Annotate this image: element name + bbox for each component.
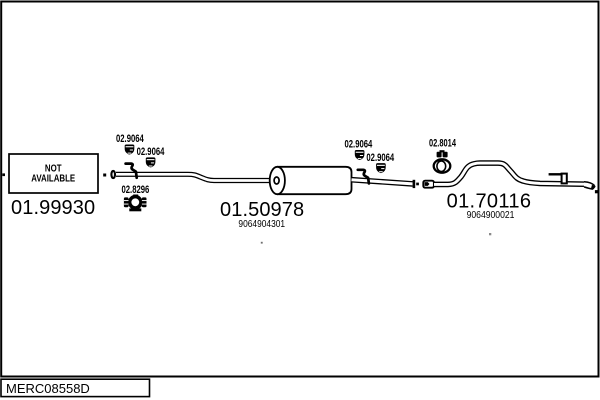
svg-text:02.8014: 02.8014 xyxy=(429,136,457,149)
svg-text:MERC08558D: MERC08558D xyxy=(6,381,90,396)
svg-text:9064904301: 9064904301 xyxy=(238,218,285,230)
svg-text:02.9064: 02.9064 xyxy=(116,133,144,146)
svg-text:02.9064: 02.9064 xyxy=(345,138,373,151)
svg-text:AVAILABLE: AVAILABLE xyxy=(31,173,75,184)
svg-text:01.99930: 01.99930 xyxy=(11,197,95,219)
svg-text:02.9064: 02.9064 xyxy=(137,146,165,159)
svg-text:9064900021: 9064900021 xyxy=(467,209,515,221)
svg-text:02.9064: 02.9064 xyxy=(366,152,394,165)
